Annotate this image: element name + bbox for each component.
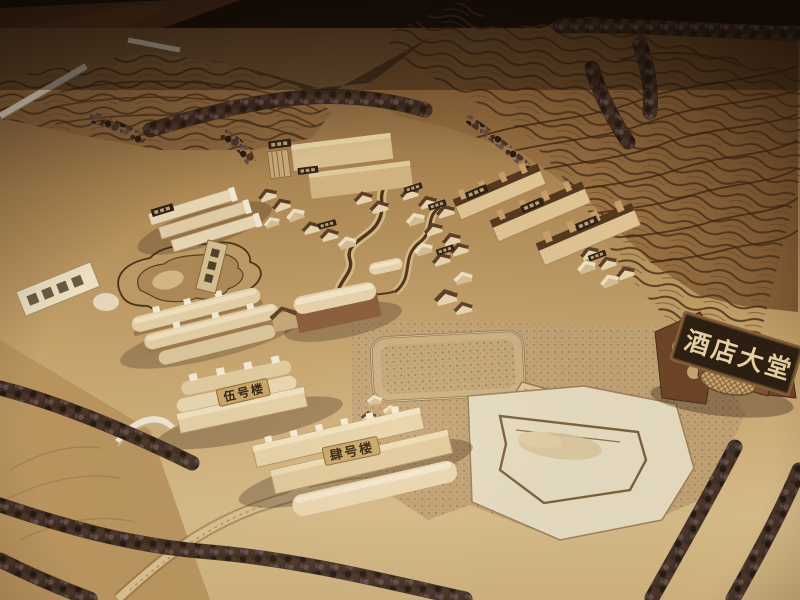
scale-model-photo: 伍号楼 肆号楼 酒店大堂	[0, 0, 800, 600]
model-scene: 伍号楼 肆号楼 酒店大堂	[0, 0, 800, 600]
top-shadow	[0, 0, 800, 90]
